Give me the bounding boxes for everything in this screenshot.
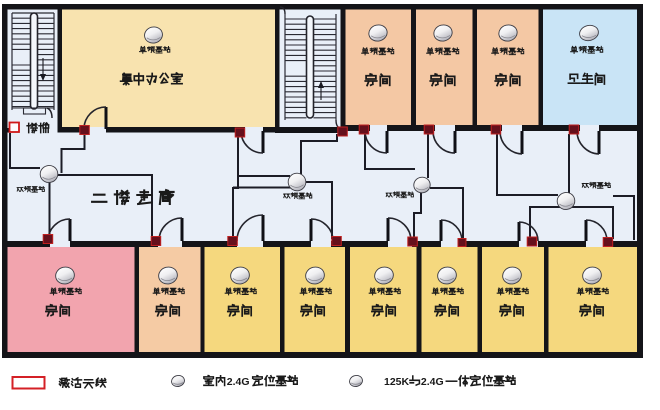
svg-text:2.4G: 2.4G: [227, 376, 250, 388]
svg-text:2.4G: 2.4G: [421, 376, 444, 388]
svg-text:125K: 125K: [384, 376, 410, 388]
